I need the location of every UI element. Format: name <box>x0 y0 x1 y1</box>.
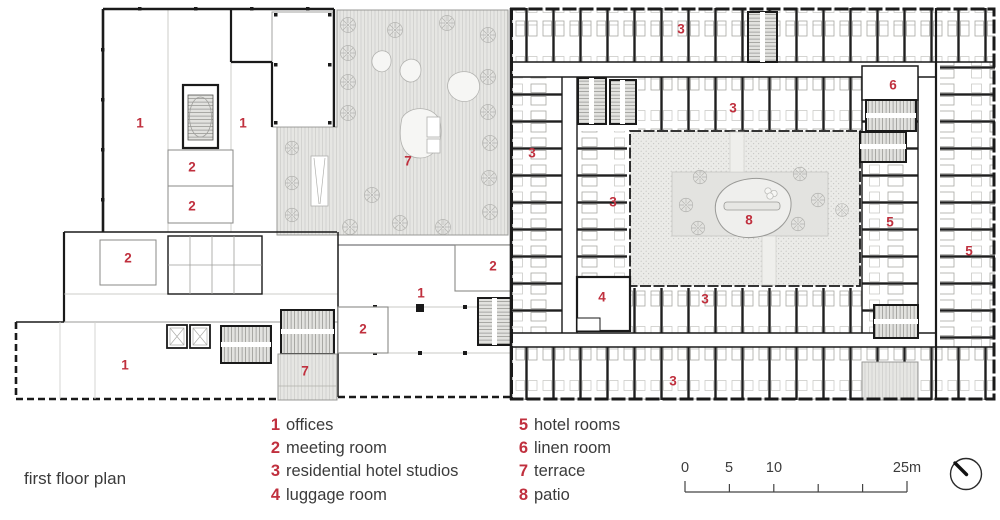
legend-item-patio: 8 patio <box>514 484 620 507</box>
scale-tick-label: 5 <box>725 460 733 476</box>
office-void-room <box>272 12 333 127</box>
legend-item-meeting-room: 2 meeting room <box>266 437 458 460</box>
north-needle-icon <box>944 452 988 496</box>
hotel-rooms-band-inner-bottom <box>630 288 862 333</box>
corridor <box>562 77 577 333</box>
hotel-rooms-band-inner-left <box>577 131 627 277</box>
plan-label-1: 1 <box>136 116 144 131</box>
plan-label-1: 1 <box>417 286 425 301</box>
stair-icon <box>610 80 636 124</box>
plan-label-5: 5 <box>886 215 894 230</box>
stair-icon <box>866 100 916 131</box>
legend-label: residential hotel studios <box>286 460 458 483</box>
stair-icon <box>748 12 777 62</box>
small-terrace <box>862 362 918 400</box>
floor-plan-drawing: 1111222223333334556778 <box>0 0 1000 412</box>
stair-icon <box>281 310 334 354</box>
plan-label-8: 8 <box>745 213 753 228</box>
legend-label: luggage room <box>286 484 387 507</box>
scale-tick-label: 25m <box>893 460 921 476</box>
hotel-rooms-band-bottom <box>511 347 995 400</box>
plan-label-3: 3 <box>701 292 709 307</box>
plan-label-7: 7 <box>404 154 412 169</box>
stair-icon <box>221 326 271 363</box>
scale-tick-label: 10 <box>766 460 782 476</box>
stair-icon <box>860 132 906 162</box>
elevator-icon <box>167 325 187 348</box>
hotel-block <box>511 8 995 400</box>
scale-bar-line <box>685 481 907 492</box>
legend-item-luggage-room: 4 luggage room <box>266 484 458 507</box>
stair-icon <box>183 85 218 148</box>
corridor <box>918 77 936 333</box>
legend-number: 7 <box>514 460 528 483</box>
stair-icon <box>874 305 918 338</box>
legend-item-terrace: 7 terrace <box>514 460 620 483</box>
legend-label: offices <box>286 414 333 437</box>
legend-item-linen-room: 6 linen room <box>514 437 620 460</box>
patio-area <box>630 131 860 286</box>
plan-label-5: 5 <box>965 244 973 259</box>
plan-label-2: 2 <box>188 160 196 175</box>
legend-number: 1 <box>266 414 280 437</box>
legend-label: hotel rooms <box>534 414 620 437</box>
legend-column-1: 1 offices 2 meeting room 3 residential h… <box>266 414 458 507</box>
elevator-icon <box>190 325 210 348</box>
plan-label-3: 3 <box>609 195 617 210</box>
patio-path <box>730 132 744 172</box>
hotel-rooms-band-left <box>511 77 562 333</box>
legend-number: 8 <box>514 484 528 507</box>
legend-number: 2 <box>266 437 280 460</box>
legend-number: 4 <box>266 484 280 507</box>
floor-plan-page: 1111222223333334556778 first floor plan … <box>0 0 1000 520</box>
plan-label-3: 3 <box>528 146 536 161</box>
legend-number: 5 <box>514 414 528 437</box>
plan-label-3: 3 <box>669 374 677 389</box>
plan-label-2: 2 <box>489 259 497 274</box>
hotel-rooms-band-right <box>940 62 995 347</box>
plan-label-2: 2 <box>124 251 132 266</box>
stair-icon <box>578 78 606 124</box>
legend-label: terrace <box>534 460 585 483</box>
legend-label: meeting room <box>286 437 387 460</box>
page-title: first floor plan <box>24 469 126 489</box>
plan-label-3: 3 <box>677 22 685 37</box>
legend-label: patio <box>534 484 570 507</box>
meeting-room <box>168 150 233 186</box>
plan-label-2: 2 <box>359 322 367 337</box>
meeting-room <box>455 245 511 291</box>
legend-number: 3 <box>266 460 280 483</box>
legend-number: 6 <box>514 437 528 460</box>
plan-label-1: 1 <box>121 358 129 373</box>
plan-label-6: 6 <box>889 78 897 93</box>
plan-label-1: 1 <box>239 116 247 131</box>
plan-label-3: 3 <box>729 101 737 116</box>
scale-bar: 0 5 10 25m <box>672 452 932 502</box>
legend-column-2: 5 hotel rooms 6 linen room 7 terrace 8 p… <box>514 414 620 507</box>
wc-cluster <box>168 236 262 294</box>
legend-label: linen room <box>534 437 611 460</box>
stair-icon <box>478 298 511 345</box>
legend-item-offices: 1 offices <box>266 414 458 437</box>
legend-item-hotel-rooms: 5 hotel rooms <box>514 414 620 437</box>
hotel-rooms-band-inner-top <box>638 77 862 130</box>
patio-bench <box>724 202 780 210</box>
plan-label-2: 2 <box>188 199 196 214</box>
legend-item-residential-hotel-studios: 3 residential hotel studios <box>266 460 458 483</box>
corridor <box>511 333 936 347</box>
meeting-room <box>168 186 233 223</box>
scale-tick-label: 0 <box>681 460 689 476</box>
patio-path <box>762 236 776 285</box>
plan-label-4: 4 <box>598 290 606 305</box>
plan-label-7: 7 <box>301 364 309 379</box>
terrace-planter-column <box>311 156 328 206</box>
